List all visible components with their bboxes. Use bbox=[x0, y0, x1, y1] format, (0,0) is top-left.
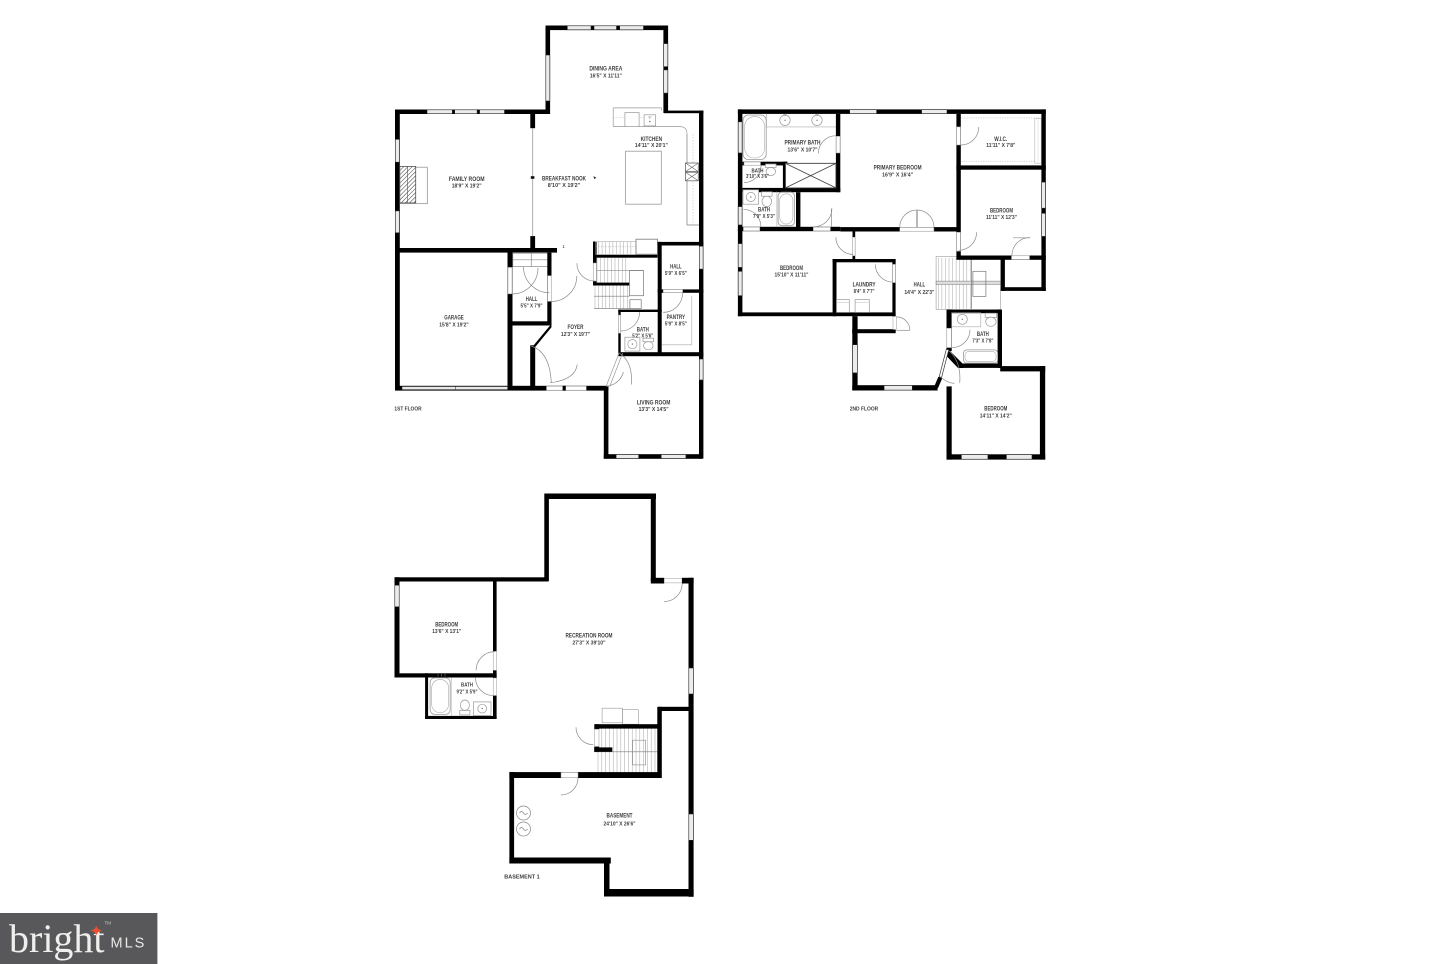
svg-text:16'5" X 11'11": 16'5" X 11'11" bbox=[590, 73, 622, 79]
svg-text:16'9" X 16'4": 16'9" X 16'4" bbox=[882, 172, 913, 178]
svg-text:FOYER: FOYER bbox=[568, 324, 584, 331]
svg-text:BEDROOM: BEDROOM bbox=[990, 207, 1013, 214]
svg-text:14'11" X 20'1": 14'11" X 20'1" bbox=[635, 143, 668, 149]
svg-text:27'3" X 39'10": 27'3" X 39'10" bbox=[573, 640, 606, 646]
svg-text:8'10" X 19'2": 8'10" X 19'2" bbox=[548, 183, 581, 189]
svg-text:13'6" X 13'1": 13'6" X 13'1" bbox=[432, 629, 461, 635]
svg-text:11'11" X 12'3": 11'11" X 12'3" bbox=[986, 215, 1017, 221]
svg-text:PRIMARY BATH: PRIMARY BATH bbox=[785, 140, 821, 147]
svg-text:BATH: BATH bbox=[758, 207, 770, 214]
svg-text:W.I.C.: W.I.C. bbox=[994, 136, 1007, 143]
svg-text:HALL: HALL bbox=[670, 263, 682, 270]
svg-text:MLS: MLS bbox=[111, 936, 147, 952]
svg-text:18'9" X 19'2": 18'9" X 19'2" bbox=[452, 184, 482, 190]
svg-text:KITCHEN: KITCHEN bbox=[641, 136, 663, 143]
svg-text:BEDROOM: BEDROOM bbox=[780, 265, 803, 272]
svg-text:5'2" X 5'6": 5'2" X 5'6" bbox=[632, 333, 653, 339]
svg-text:TM: TM bbox=[105, 921, 112, 926]
svg-text:BASEMENT 1: BASEMENT 1 bbox=[504, 874, 539, 880]
svg-text:GARAGE: GARAGE bbox=[444, 315, 464, 322]
svg-text:8'4" X 7'7": 8'4" X 7'7" bbox=[854, 289, 875, 295]
svg-text:15'8" X 19'2": 15'8" X 19'2" bbox=[439, 322, 469, 328]
svg-text:15'10" X 11'11": 15'10" X 11'11" bbox=[775, 272, 809, 278]
svg-text:BEDROOM: BEDROOM bbox=[435, 621, 458, 628]
svg-text:7'3" X 7'8": 7'3" X 7'8" bbox=[972, 339, 993, 345]
svg-text:PRIMARY BEDROOM: PRIMARY BEDROOM bbox=[874, 165, 922, 172]
svg-text:12'3" X 19'7": 12'3" X 19'7" bbox=[561, 332, 590, 338]
svg-text:13'6" X 10'7": 13'6" X 10'7" bbox=[788, 147, 818, 153]
svg-text:1ST FLOOR: 1ST FLOOR bbox=[394, 406, 421, 412]
svg-text:BREAKFAST NOOK: BREAKFAST NOOK bbox=[542, 176, 586, 183]
svg-text:3'10" X 3'6": 3'10" X 3'6" bbox=[746, 174, 769, 180]
svg-text:BATH: BATH bbox=[977, 331, 989, 338]
svg-text:5'9" X 6'5": 5'9" X 6'5" bbox=[665, 271, 687, 277]
svg-text:LIVING ROOM: LIVING ROOM bbox=[637, 400, 671, 407]
svg-text:14'11" X 14'2": 14'11" X 14'2" bbox=[980, 413, 1012, 419]
svg-text:LAUNDRY: LAUNDRY bbox=[853, 282, 876, 289]
svg-text:14'4" X 22'3": 14'4" X 22'3" bbox=[904, 290, 934, 296]
svg-text:BASEMENT: BASEMENT bbox=[607, 813, 633, 820]
svg-text:BEDROOM: BEDROOM bbox=[984, 405, 1007, 412]
svg-text:DINING AREA: DINING AREA bbox=[589, 66, 622, 73]
svg-text:FAMILY ROOM: FAMILY ROOM bbox=[449, 176, 485, 183]
svg-text:11'11" X 7'8": 11'11" X 7'8" bbox=[986, 143, 1015, 149]
svg-text:RECREATION ROOM: RECREATION ROOM bbox=[566, 633, 613, 640]
svg-text:BATH: BATH bbox=[461, 683, 473, 689]
svg-text:9'2" X 5'9": 9'2" X 5'9" bbox=[457, 689, 478, 695]
svg-text:HALL: HALL bbox=[526, 296, 538, 303]
svg-text:5'9" X 8'5": 5'9" X 8'5" bbox=[665, 322, 687, 328]
svg-text:HALL: HALL bbox=[914, 282, 926, 289]
svg-text:7'9" X 5'3": 7'9" X 5'3" bbox=[753, 214, 775, 220]
svg-text:5'5" X 7'9": 5'5" X 7'9" bbox=[521, 304, 543, 310]
svg-text:PANTRY: PANTRY bbox=[667, 314, 686, 321]
svg-text:2ND FLOOR: 2ND FLOOR bbox=[850, 406, 879, 412]
svg-text:bright: bright bbox=[9, 916, 105, 961]
svg-text:24'10" X 26'6": 24'10" X 26'6" bbox=[604, 821, 636, 827]
svg-text:13'3" X 14'5": 13'3" X 14'5" bbox=[639, 407, 669, 413]
